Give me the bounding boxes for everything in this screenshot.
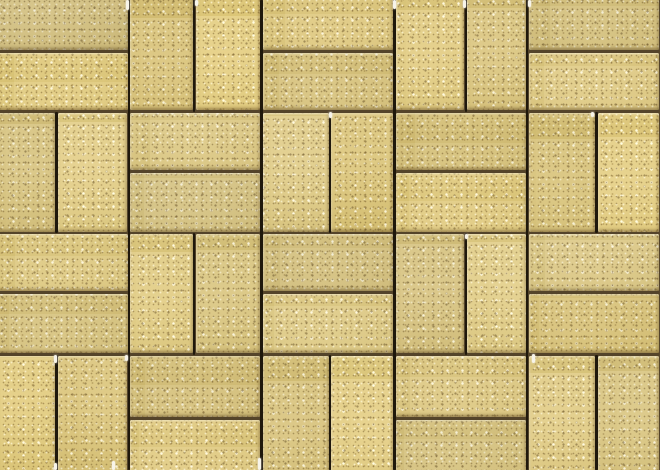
paver-brick [529,0,659,50]
paver-brick [263,53,393,110]
paver-brick [0,294,128,353]
paver-brick [130,420,260,470]
paver-brick [263,113,329,232]
paver-brick [598,113,659,232]
grout-glint [528,0,531,7]
grout-glint [465,234,468,239]
paver-brick [0,356,55,470]
paver-brick [396,356,526,417]
grout-glint [463,0,466,8]
grout-glint [54,355,57,363]
paver-brick [130,356,260,417]
paver-brick [467,234,526,353]
paver-brick [396,113,526,170]
paver-brick [331,113,393,232]
grout-glint [54,463,57,470]
paver-brick [0,53,128,110]
paver-brick [196,234,261,353]
paver-brick [467,0,526,110]
paver-brick [331,356,393,470]
paver-brick [130,173,260,232]
grout-glint [125,355,128,361]
paver-brick [529,294,659,353]
grout-glint [126,0,129,10]
paver-brick [529,234,659,291]
paver-brick [130,0,193,110]
grout-glint [258,458,261,470]
paver-brick [58,113,128,232]
paver-brick [0,234,128,291]
paver-brick [263,0,393,50]
grout-glint [591,112,594,117]
grout-glint [112,461,115,470]
grout-glint [329,112,332,118]
grout-glint [532,354,535,363]
paver-brick [130,113,260,170]
paver-brick [0,113,55,232]
paver-brick [598,356,659,470]
grout-glint [393,0,396,9]
paver-brick [196,0,261,110]
paver-brick [529,53,659,110]
grout-glint [195,0,198,6]
paver-brick [0,0,128,50]
paver-brick [263,234,393,291]
paver-brick [396,234,465,353]
paver-brick [130,234,193,353]
paver-brick [396,0,465,110]
paver-brick [396,420,526,470]
paver-brick [263,356,329,470]
paver-brick [263,294,393,353]
pavement-photo: Close-up top-down photograph of sand / b… [0,0,660,470]
paver-brick [529,356,596,470]
paver-brick [396,173,526,232]
paver-brick [58,356,128,470]
paver-brick [529,113,596,232]
